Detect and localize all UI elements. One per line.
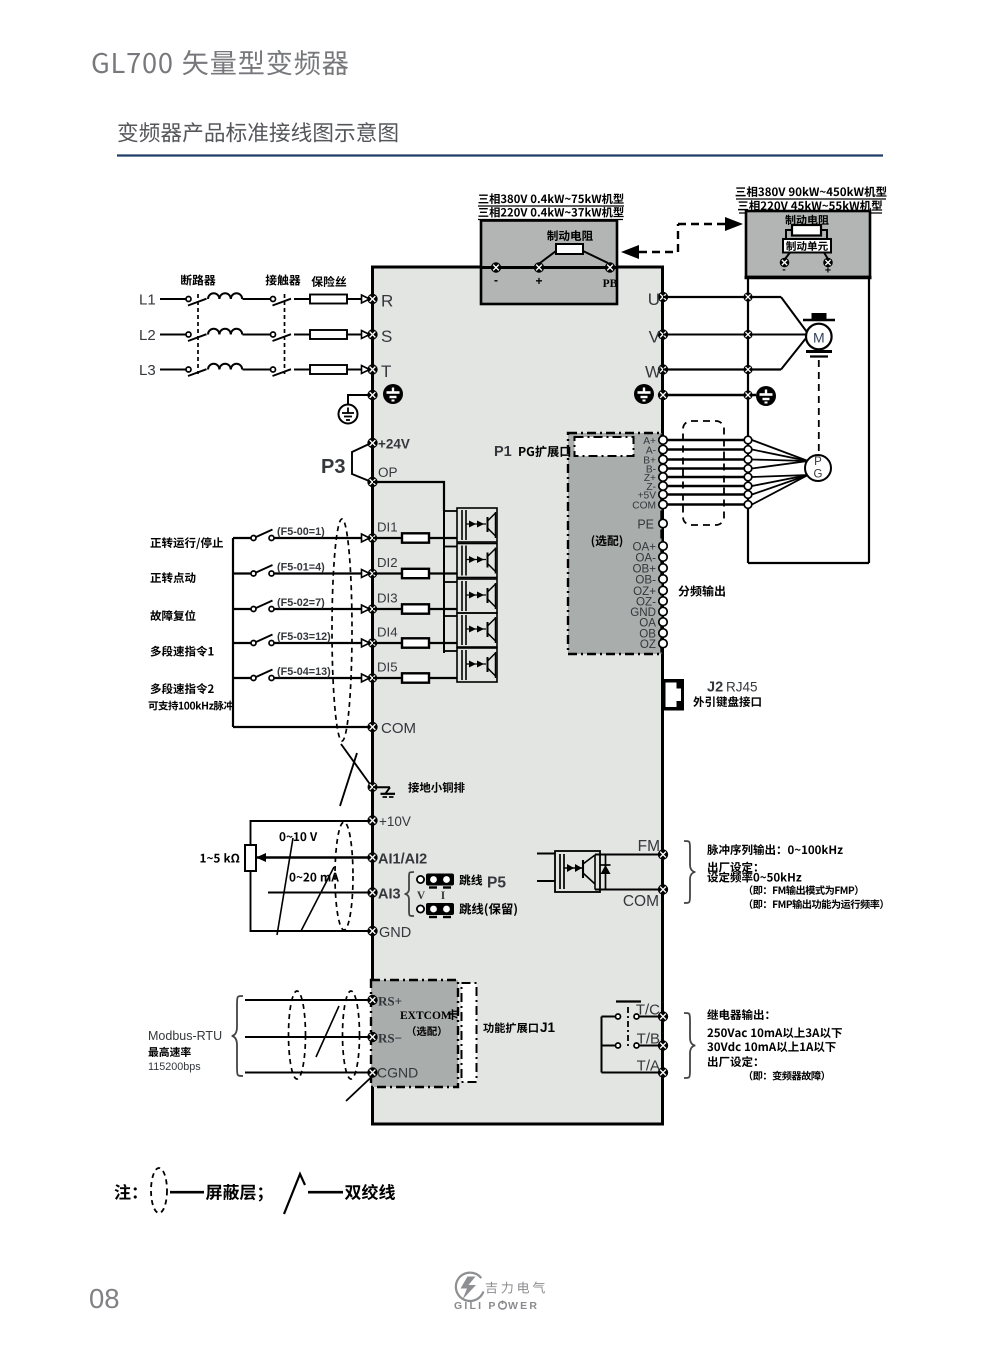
svg-text:M: M: [813, 330, 825, 346]
svg-text:P1: P1: [494, 444, 512, 460]
svg-text:PE: PE: [637, 518, 654, 532]
svg-text:DI3: DI3: [377, 591, 398, 606]
svg-text:(F5-01=4): (F5-01=4): [277, 562, 325, 574]
svg-text:T/A: T/A: [637, 1058, 660, 1075]
svg-text:FM: FM: [638, 838, 660, 855]
svg-text:RS−: RS−: [378, 1031, 402, 1046]
svg-text:(F5-04=13): (F5-04=13): [277, 666, 331, 678]
svg-text:T/B: T/B: [637, 1031, 660, 1048]
svg-text:-: -: [782, 264, 786, 276]
svg-text:T: T: [381, 362, 391, 381]
svg-text:CGND: CGND: [377, 1065, 418, 1081]
svg-text:DI1: DI1: [377, 520, 398, 535]
svg-text:J1: J1: [540, 1020, 556, 1035]
svg-text:COM: COM: [623, 893, 659, 910]
svg-text:L1: L1: [139, 292, 156, 309]
svg-text:G: G: [814, 469, 823, 481]
svg-text:AI1/AI2: AI1/AI2: [378, 852, 427, 868]
svg-text:P: P: [814, 456, 822, 468]
svg-text:I: I: [441, 890, 446, 902]
svg-text:+10V: +10V: [379, 814, 411, 829]
svg-text:OP: OP: [378, 465, 398, 480]
svg-text:DI2: DI2: [377, 555, 398, 570]
svg-text:RS+: RS+: [378, 994, 402, 1009]
svg-text:Modbus-RTU: Modbus-RTU: [148, 1029, 222, 1043]
svg-text:OZ: OZ: [640, 638, 656, 651]
svg-text:L2: L2: [139, 327, 156, 344]
svg-text:AI3: AI3: [378, 887, 401, 903]
svg-text:EXTCOM: EXTCOM: [400, 1010, 452, 1022]
svg-text:GND: GND: [379, 925, 411, 941]
svg-text:P5: P5: [487, 875, 506, 892]
svg-text:+: +: [535, 274, 542, 288]
svg-text:(F5-02=7): (F5-02=7): [277, 597, 325, 609]
svg-text:S: S: [381, 327, 392, 346]
svg-text:L3: L3: [139, 362, 156, 379]
svg-text:U: U: [648, 290, 660, 309]
svg-text:DI4: DI4: [377, 625, 398, 640]
svg-text:(F5-00=1): (F5-00=1): [277, 526, 325, 538]
svg-text:V: V: [417, 890, 426, 902]
svg-text:T/C: T/C: [636, 1002, 660, 1019]
svg-text:WER: WER: [508, 1300, 539, 1312]
svg-text:COM: COM: [632, 500, 656, 511]
svg-text:COM: COM: [381, 720, 416, 737]
svg-text:DI5: DI5: [377, 660, 398, 675]
svg-text:R: R: [381, 292, 393, 311]
svg-text:115200bps: 115200bps: [148, 1061, 201, 1073]
svg-text:GILI P: GILI P: [454, 1300, 498, 1312]
svg-text:PB: PB: [603, 278, 618, 290]
svg-text:J2: J2: [707, 680, 723, 696]
svg-text:P3: P3: [321, 456, 345, 478]
svg-text:W: W: [645, 363, 661, 382]
svg-text:-: -: [494, 273, 498, 287]
svg-text:RJ45: RJ45: [726, 680, 758, 695]
svg-text:V: V: [649, 328, 661, 347]
svg-text:+24V: +24V: [378, 437, 410, 452]
svg-text:+: +: [825, 265, 831, 277]
svg-text:08: 08: [89, 1283, 120, 1314]
svg-text:(F5-03=12): (F5-03=12): [277, 631, 331, 643]
